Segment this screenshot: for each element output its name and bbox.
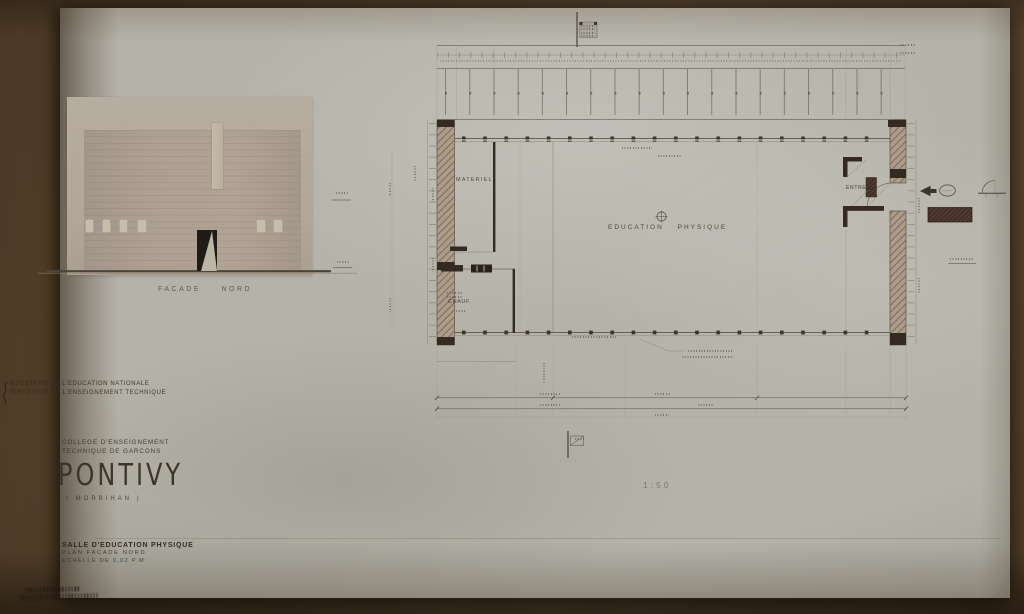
elevation-caption: FACADE NORD — [158, 286, 252, 293]
wall-section-detail — [928, 208, 976, 264]
room-label-entree: ENTREE — [846, 186, 870, 191]
department-label: ( MORBIHAN ) — [66, 496, 142, 502]
ministry-line2: DIRECTION DE L'ENSEIGNEMENT TECHNIQUE — [10, 390, 166, 396]
entrance-vestibule-walls — [843, 157, 884, 227]
drawing-title: SALLE D'EDUCATION PHYSIQUE — [62, 542, 194, 549]
left-wall — [392, 120, 455, 345]
materiel-room-walls — [450, 142, 494, 252]
school-name-line1: COLLEGE D'ENSEIGNEMENT — [62, 440, 169, 446]
hall-floor-lines — [520, 142, 846, 332]
project-city-title: PONTIVY — [58, 460, 183, 490]
room-number-symbol — [656, 211, 668, 223]
ministry-line1: MINISTERE DE L'EDUCATION NATIONALE — [10, 381, 149, 387]
plan-scale-label: 1:50 — [643, 481, 672, 490]
school-name-line2: TECHNIQUE DE GARCONS — [62, 449, 161, 455]
photographed-architectural-drawing: MINISTERE DE L'EDUCATION NATIONALE DIREC… — [0, 0, 1024, 614]
elevation-ground-line — [38, 200, 357, 273]
gutter-detail-sketch — [978, 180, 1006, 196]
room-label-chaufferie: CHAUF. — [448, 300, 471, 306]
plan-linework — [0, 0, 1024, 614]
drawing-subtitle: PLAN FACADE NORD — [62, 551, 146, 557]
north-arrow — [920, 186, 937, 196]
drawing-scale-note: ECHELLE DE 0,02 P.M. — [62, 559, 148, 565]
marker-note — [581, 32, 595, 34]
bottom-wall — [455, 331, 890, 336]
roof-framing-band — [437, 46, 906, 121]
brace-mark — [3, 382, 7, 403]
right-wall — [867, 120, 916, 345]
room-label-materiel: MATERIEL — [456, 178, 493, 184]
top-wall — [455, 137, 890, 142]
dimension-lines-bottom — [435, 339, 908, 418]
room-label-education-physique: EDUCATION PHYSIQUE — [608, 225, 727, 232]
section-marker-bottom — [568, 431, 584, 458]
marker-note — [581, 25, 595, 27]
detail-callout-ellipse — [940, 185, 956, 196]
